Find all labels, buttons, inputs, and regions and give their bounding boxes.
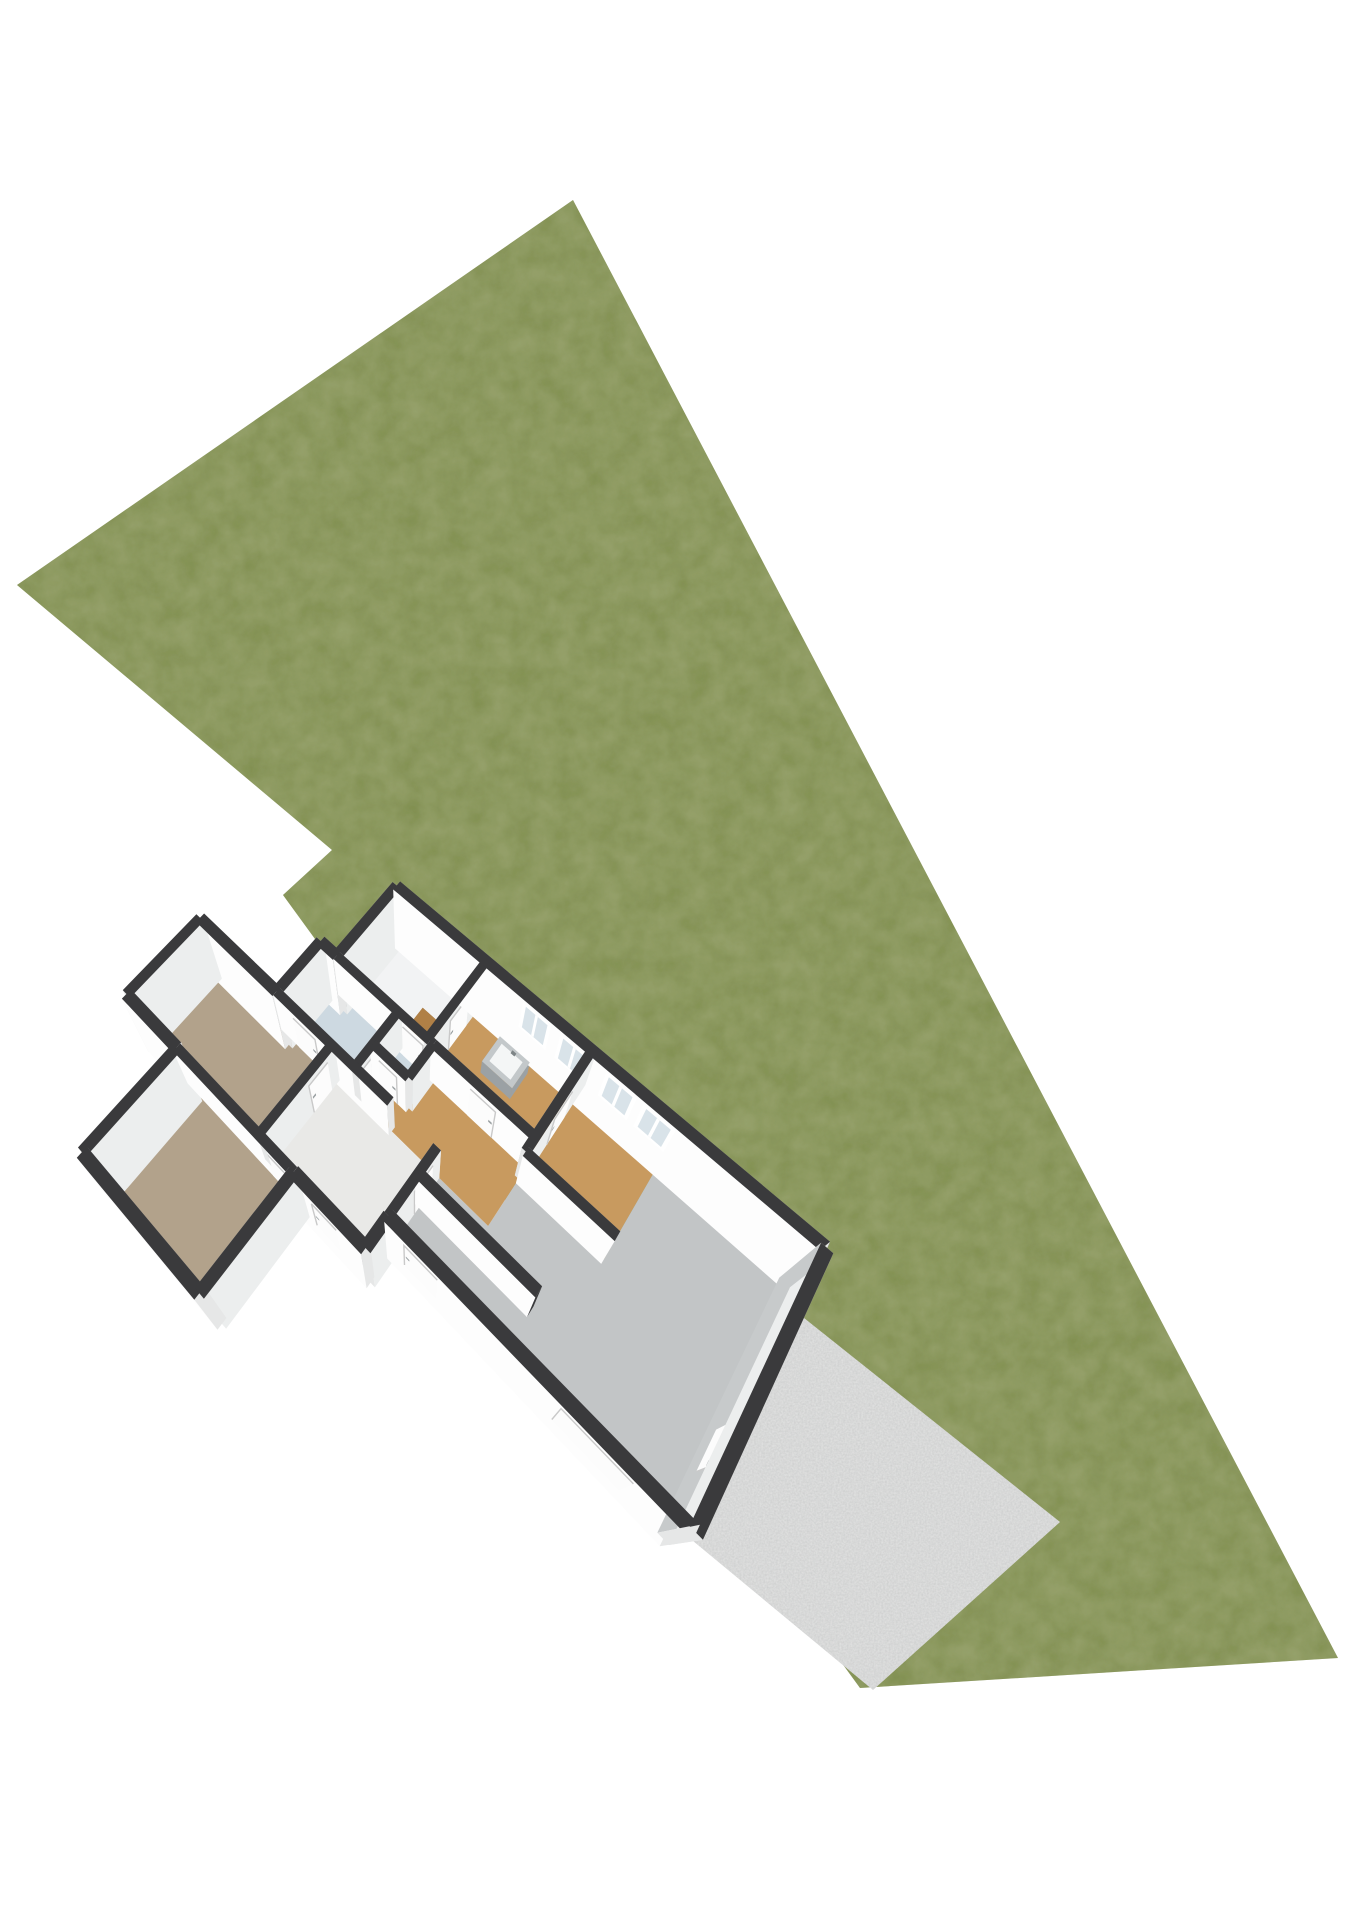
floorplan-svg (0, 0, 1358, 1920)
site-plan-3d-render (0, 0, 1358, 1920)
